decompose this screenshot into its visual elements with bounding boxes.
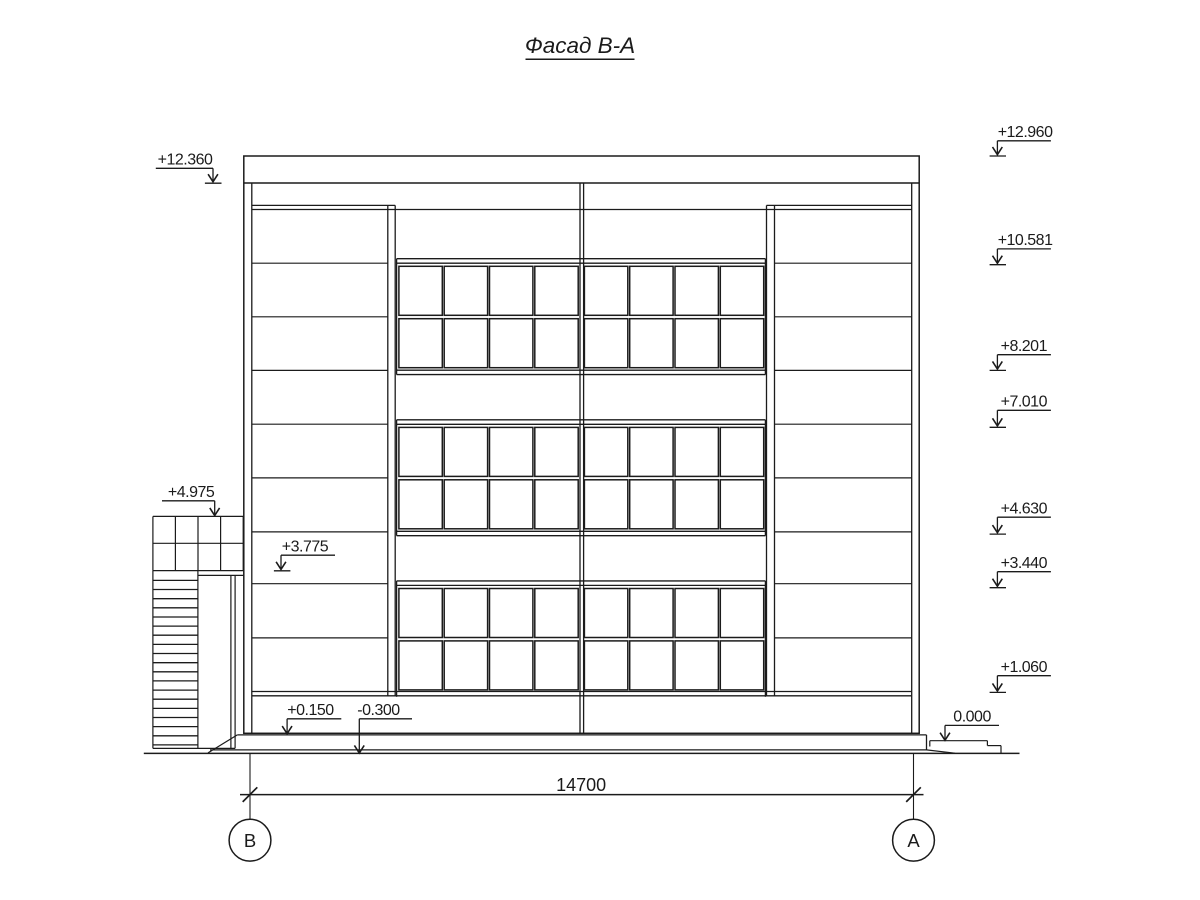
svg-text:А: А — [907, 830, 920, 851]
svg-text:-0.300: -0.300 — [357, 702, 400, 719]
svg-text:+3.440: +3.440 — [1001, 555, 1048, 572]
svg-text:+3.775: +3.775 — [282, 538, 329, 555]
svg-text:+8.201: +8.201 — [1001, 338, 1048, 355]
svg-text:+12.360: +12.360 — [158, 152, 213, 169]
svg-text:+0.150: +0.150 — [287, 702, 334, 719]
svg-text:+1.060: +1.060 — [1001, 659, 1048, 676]
svg-text:+10.581: +10.581 — [998, 232, 1053, 249]
svg-text:В: В — [244, 830, 256, 851]
svg-text:+4.975: +4.975 — [168, 484, 215, 501]
svg-text:14700: 14700 — [556, 775, 606, 795]
svg-text:+4.630: +4.630 — [1001, 500, 1048, 517]
svg-text:0.000: 0.000 — [953, 709, 991, 726]
svg-text:Фасад В-А: Фасад В-А — [525, 33, 635, 58]
svg-text:+12.960: +12.960 — [998, 124, 1053, 141]
svg-text:+7.010: +7.010 — [1001, 394, 1048, 411]
